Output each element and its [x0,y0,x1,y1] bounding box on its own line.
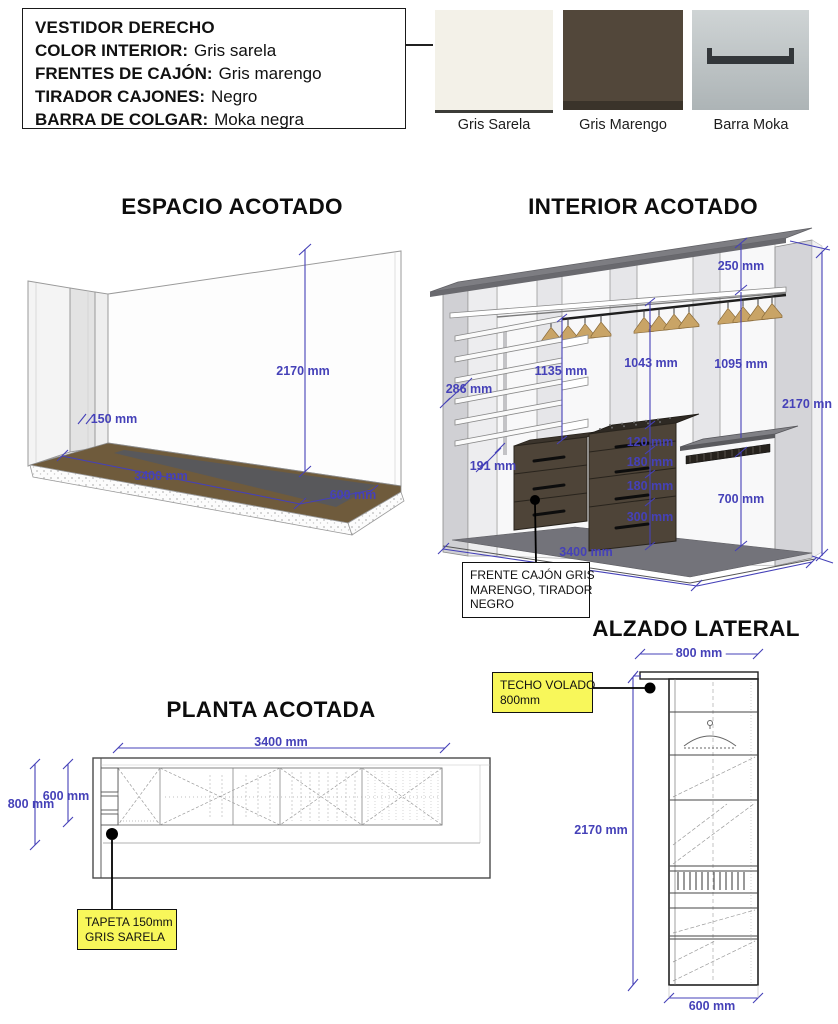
spec-label: COLOR INTERIOR: [35,41,188,60]
swatch-barra-moka [692,10,809,110]
dim-label: 300 mm [627,510,674,524]
dim-label: 180 mm [627,455,674,469]
note-line: TECHO VOLADO [500,678,585,693]
note-tapeta: TAPETA 150mm GRIS SARELA [77,909,177,950]
dim-label: 3400 mm [254,735,308,749]
swatch-gris-sarela [435,10,553,113]
swatch-label-marengo: Gris Marengo [579,117,667,133]
plan-sheet: VESTIDOR DERECHO COLOR INTERIOR:Gris sar… [0,0,838,1024]
note-line: GRIS SARELA [85,930,169,945]
note-techo-volado: TECHO VOLADO 800mm [492,672,593,713]
spec-label: TIRADOR CAJONES: [35,87,205,106]
dim-label: 250 mm [718,259,765,273]
swatch-gris-marengo [563,10,683,110]
swatch-marengo-edge [563,101,683,110]
spec-value: Gris marengo [219,64,322,83]
interior-drawing [430,228,833,591]
dim-label: 2170 mm [276,364,330,378]
dim-label: 1135 mm [535,364,588,378]
spec-row-barra: BARRA DE COLGAR:Moka negra [35,108,405,131]
dim-label: 191 mm [470,459,517,473]
swatch-label-sarela: Gris Sarela [458,117,531,133]
dim-label: 3400 mm [134,469,188,483]
dim-label: 800 mm [8,797,55,811]
spec-value: Negro [211,87,257,106]
spec-row-tirador: TIRADOR CAJONES:Negro [35,85,405,108]
swatch-label-moka: Barra Moka [714,117,789,133]
note-line: NEGRO [470,597,582,612]
note-line: 800mm [500,693,585,708]
moka-bar-icon [707,56,794,64]
technical-drawing [0,0,838,1024]
note-frente-cajon: FRENTE CAJÓN GRIS MARENGO, TIRADOR NEGRO [462,562,590,618]
spec-value: Moka negra [214,110,304,129]
planta-drawing [30,743,490,909]
dim-label: 150 mm [91,412,138,426]
dim-label: 1095 mm [714,357,768,371]
dim-label: 600 mm [330,488,377,502]
dim-label: 3400 mm [559,545,613,559]
note-line: FRENTE CAJÓN GRIS [470,568,582,583]
spec-row-frentes: FRENTES DE CAJÓN:Gris marengo [35,62,405,85]
spec-value: Gris sarela [194,41,276,60]
spec-label: FRENTES DE CAJÓN: [35,64,213,83]
spec-title: VESTIDOR DERECHO [35,16,405,39]
title-planta-acotada: PLANTA ACOTADA [166,697,375,723]
dim-label: 120 mm [627,435,674,449]
dim-label: 1043 mm [624,356,678,370]
note-line: MARENGO, TIRADOR [470,583,582,598]
dim-label: 800 mm [673,646,726,660]
spec-panel: VESTIDOR DERECHO COLOR INTERIOR:Gris sar… [22,8,406,129]
title-espacio-acotado: ESPACIO ACOTADO [121,194,343,220]
dim-label: 180 mm [627,479,674,493]
spec-row-color-interior: COLOR INTERIOR:Gris sarela [35,39,405,62]
dim-label: 2170 mn [782,397,832,411]
note-line: TAPETA 150mm [85,915,169,930]
title-interior-acotado: INTERIOR ACOTADO [528,194,758,220]
dim-label: 2170 mm [574,823,628,837]
dim-label: 700 mm [718,492,765,506]
dim-label: 600 mm [686,999,739,1013]
spec-label: BARRA DE COLGAR: [35,110,208,129]
title-alzado-lateral: ALZADO LATERAL [592,616,800,642]
dim-label: 286 mm [446,382,493,396]
